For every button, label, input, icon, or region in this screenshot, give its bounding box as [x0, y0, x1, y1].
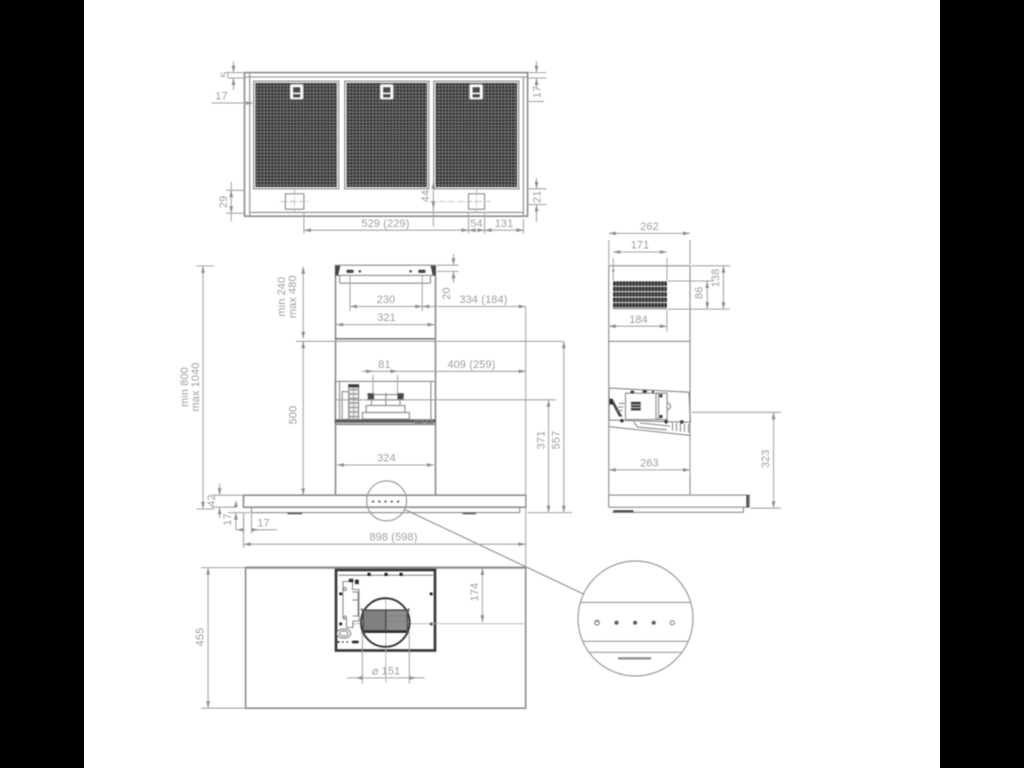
svg-text:230: 230 — [377, 294, 396, 306]
svg-text:557: 557 — [551, 431, 563, 450]
svg-text:17: 17 — [257, 517, 269, 529]
svg-text:371: 371 — [536, 431, 548, 450]
svg-text:324: 324 — [377, 453, 396, 465]
svg-text:5: 5 — [220, 71, 232, 77]
svg-text:334 (184): 334 (184) — [460, 294, 508, 306]
svg-text:17: 17 — [532, 86, 544, 98]
svg-text:174: 174 — [469, 583, 481, 602]
svg-text:29: 29 — [218, 196, 230, 208]
svg-text:42: 42 — [206, 494, 218, 506]
svg-text:323: 323 — [760, 449, 772, 468]
svg-text:131: 131 — [495, 218, 514, 230]
svg-text:409 (259): 409 (259) — [448, 359, 496, 371]
svg-text:44: 44 — [420, 190, 432, 202]
svg-text:17: 17 — [222, 513, 234, 525]
svg-text:171: 171 — [631, 240, 650, 252]
svg-text:81: 81 — [378, 359, 390, 371]
svg-text:17: 17 — [215, 91, 227, 103]
svg-text:20: 20 — [441, 287, 453, 299]
svg-text:529 (229): 529 (229) — [362, 218, 410, 230]
svg-text:86: 86 — [694, 287, 706, 299]
svg-text:21: 21 — [532, 191, 544, 203]
svg-text:max 480: max 480 — [287, 275, 299, 318]
svg-text:⌀ 151: ⌀ 151 — [372, 666, 401, 678]
svg-text:500: 500 — [288, 406, 300, 425]
svg-text:138: 138 — [710, 269, 722, 288]
svg-text:321: 321 — [377, 312, 396, 324]
svg-text:184: 184 — [629, 314, 648, 326]
svg-text:54: 54 — [470, 218, 482, 230]
svg-text:263: 263 — [640, 457, 659, 469]
svg-text:455: 455 — [195, 628, 207, 647]
svg-text:898 (598): 898 (598) — [370, 532, 418, 544]
svg-text:262: 262 — [640, 221, 659, 233]
svg-text:max 1040: max 1040 — [190, 362, 202, 411]
